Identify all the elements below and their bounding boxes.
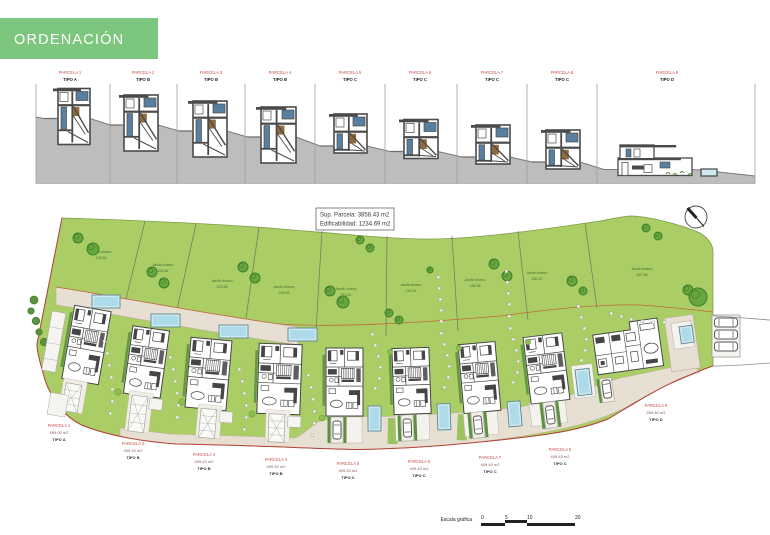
svg-text:459.00 m2: 459.00 m2	[50, 430, 70, 435]
svg-text:PARCELA 2: PARCELA 2	[122, 441, 145, 446]
svg-text:409.43 m2: 409.43 m2	[124, 448, 144, 453]
svg-text:204.93: 204.93	[279, 291, 290, 295]
svg-text:TIPO A: TIPO A	[52, 437, 65, 442]
svg-text:198.38: 198.38	[470, 284, 481, 288]
svg-text:20: 20	[575, 515, 581, 521]
svg-text:PARCELA 3: PARCELA 3	[200, 70, 223, 75]
svg-text:PARCELA 6: PARCELA 6	[409, 70, 432, 75]
svg-text:Jardín Anexo: Jardín Anexo	[274, 285, 295, 289]
svg-text:TIPO D: TIPO D	[649, 417, 662, 422]
svg-text:TIPO D: TIPO D	[660, 77, 674, 82]
svg-text:TIPO C: TIPO C	[555, 77, 569, 82]
svg-text:PARCELA 4: PARCELA 4	[269, 70, 292, 75]
svg-text:TIPO B: TIPO B	[269, 471, 282, 476]
svg-text:TIPO C: TIPO C	[553, 461, 566, 466]
svg-text:Jardín Anexo: Jardín Anexo	[465, 278, 486, 282]
svg-text:555.40 m2: 555.40 m2	[647, 410, 667, 415]
svg-text:Jardín Anexo: Jardín Anexo	[527, 271, 548, 275]
svg-text:PARCELA 5: PARCELA 5	[337, 461, 360, 466]
svg-text:PARCELA 7: PARCELA 7	[479, 455, 502, 460]
svg-text:PARCELA 6: PARCELA 6	[408, 459, 431, 464]
svg-text:PARCELA 1: PARCELA 1	[48, 423, 71, 428]
svg-text:TIPO B: TIPO B	[136, 77, 150, 82]
svg-text:PARCELA 5: PARCELA 5	[339, 70, 362, 75]
svg-text:Sup. Parcela: 3858.43 m2: Sup. Parcela: 3858.43 m2	[320, 213, 390, 219]
svg-text:Jardín Anexo: Jardín Anexo	[632, 267, 653, 271]
svg-text:Escala gráfica: Escala gráfica	[441, 517, 473, 523]
svg-text:TIPO C: TIPO C	[341, 475, 354, 480]
svg-text:Jardín Anexo: Jardín Anexo	[401, 283, 422, 287]
svg-text:TIPO C: TIPO C	[413, 77, 427, 82]
svg-text:437.96: 437.96	[637, 273, 648, 277]
svg-text:TIPO C: TIPO C	[343, 77, 357, 82]
svg-text:PARCELA 8: PARCELA 8	[549, 447, 572, 452]
svg-text:230.42: 230.42	[532, 277, 543, 281]
svg-text:226.54: 226.54	[96, 256, 107, 260]
svg-text:409.43 m2: 409.43 m2	[267, 464, 287, 469]
svg-text:PARCELA 2: PARCELA 2	[132, 70, 155, 75]
svg-text:409.43 m2: 409.43 m2	[481, 462, 501, 467]
svg-text:Jardín Anexo: Jardín Anexo	[336, 287, 357, 291]
svg-text:TIPO A: TIPO A	[63, 77, 77, 82]
svg-text:Jardín Anexo: Jardín Anexo	[153, 263, 174, 267]
svg-text:0: 0	[481, 515, 484, 521]
svg-text:TIPO B: TIPO B	[273, 77, 287, 82]
svg-text:PARCELA 8: PARCELA 8	[551, 70, 574, 75]
svg-text:409.43 m2: 409.43 m2	[339, 468, 359, 473]
svg-text:409.43 m2: 409.43 m2	[551, 454, 571, 459]
svg-text:218.31: 218.31	[406, 289, 417, 293]
svg-text:TIPO B: TIPO B	[126, 455, 139, 460]
svg-text:ORDENACIÓN: ORDENACIÓN	[14, 31, 124, 48]
svg-text:PARCELA 7: PARCELA 7	[481, 70, 504, 75]
svg-text:PARCELA 4: PARCELA 4	[265, 457, 288, 462]
svg-text:TIPO B: TIPO B	[204, 77, 218, 82]
svg-text:Edificabilidad: 1234.69 m2: Edificabilidad: 1234.69 m2	[320, 222, 391, 228]
svg-text:PARCELA 1: PARCELA 1	[59, 70, 82, 75]
svg-text:10: 10	[527, 515, 533, 521]
svg-text:PARCELA 9: PARCELA 9	[656, 70, 679, 75]
svg-text:Jardín Anexo: Jardín Anexo	[212, 279, 233, 283]
svg-text:TIPO C: TIPO C	[483, 469, 496, 474]
svg-text:203.56: 203.56	[217, 285, 228, 289]
svg-text:TIPO C: TIPO C	[412, 473, 425, 478]
svg-text:TIPO C: TIPO C	[485, 77, 499, 82]
svg-text:223.84: 223.84	[158, 269, 169, 273]
svg-text:409.43 m2: 409.43 m2	[410, 466, 430, 471]
svg-text:PARCELA 9: PARCELA 9	[645, 403, 668, 408]
svg-text:TIPO B: TIPO B	[197, 466, 210, 471]
svg-text:PARCELA 3: PARCELA 3	[193, 452, 216, 457]
svg-text:409.43 m2: 409.43 m2	[195, 459, 215, 464]
